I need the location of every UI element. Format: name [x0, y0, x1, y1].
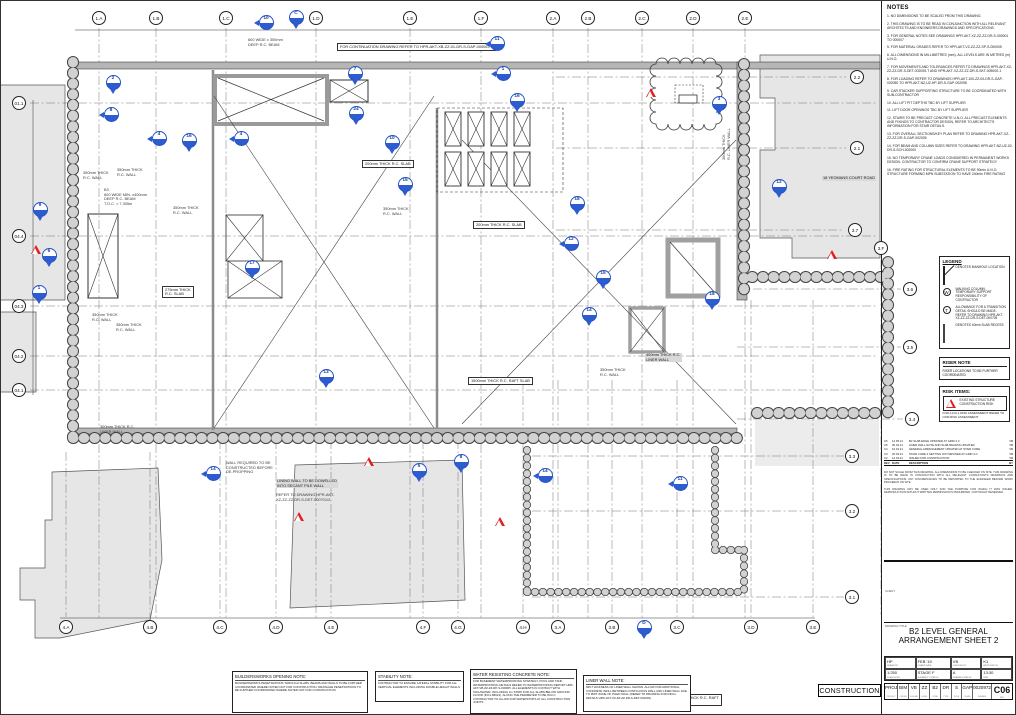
code-label: NUMBER [978, 696, 986, 698]
title-block-field: VBCHECKED BY [951, 657, 982, 669]
plan-label: 350mm THICK R.C. WALL [173, 206, 199, 215]
note-item: 10. ALL LIFT PIT DEPTHS TBC BY LIFT SUPP… [887, 101, 1013, 105]
code-label: ROLE [954, 696, 959, 698]
notes-list: 1. NO DIMENSIONS TO BE SCALED FROM THIS … [887, 14, 1013, 176]
plan-label: 350mm THICK R.C. WALL [117, 168, 143, 177]
panel-divider [881, 0, 882, 715]
note-item: 12. STAIRS TO BE PRECAST CONCRETE U.N.O.… [887, 116, 1013, 129]
field-value: K1 [983, 659, 1010, 664]
notes-title: NOTES [887, 5, 1013, 11]
note-box-title: BUILDERSWORKS OPENING NOTE: [235, 674, 365, 681]
section-marker-number: 1 [497, 67, 510, 72]
drawing-code-part: ZZLEVEL [920, 684, 931, 699]
section-marker: 14 [582, 307, 597, 322]
note-item: 11. LIFT DOOR OPENINGS TBC BY LIFT SUPPL… [887, 108, 1013, 112]
circle-icon: W [943, 288, 951, 296]
note-item: 8. FOR LOADING REFER TO DRAWINGS HPR-AKT… [887, 77, 1013, 86]
risk-warning-triangle [31, 245, 41, 254]
manhole-icon [943, 267, 954, 285]
section-marker: 2 [106, 75, 121, 90]
disclaimer-paragraph: DO NOT SCALE FROM THIS DRAWING. ALL DIME… [884, 471, 1013, 485]
car-stacker-pits [445, 112, 530, 186]
section-marker-number: 10 [260, 16, 273, 21]
section-marker-number: 8 [105, 108, 118, 113]
field-label: DRAWING STATUS [953, 677, 980, 679]
grid-bubble: 3.F [874, 241, 888, 255]
grid-bubble: 04.2 [12, 349, 26, 363]
grid-bubble: 04.4 [12, 229, 26, 243]
drawing-code-part: BIMORIGIN [898, 684, 909, 699]
field-value: 13:30 [983, 670, 1010, 675]
field-label: CHECKED BY [953, 665, 980, 667]
grid-bubble: 3.D [744, 620, 758, 634]
section-marker: 10 [385, 135, 400, 150]
note-item: 6. ALL DIMENSIONS IN MILLIMETRES (mm). A… [887, 53, 1013, 62]
section-marker-number: 9 [34, 203, 47, 208]
note-item: 16. FIRE RATING FOR STRUCTURAL ELEMENTS … [887, 168, 1013, 177]
grid-bubble: 3.7 [848, 223, 862, 237]
section-marker: 8 [104, 107, 119, 122]
grid-bubble: 4.D [269, 620, 283, 634]
plan-area: 1.A1.B1.C1.D1.E1.F2.A2.B2.C2.D2.E4.A4.B4… [0, 0, 1016, 715]
plan-label: 400mm THICK R.C. LINER WALL [645, 353, 682, 362]
title-block-field: FEB '19DRAWN DATE [916, 657, 951, 669]
section-marker-number: C [290, 11, 303, 16]
section-marker: 11 [490, 36, 505, 51]
risk-warning-triangle [495, 517, 505, 526]
section-marker: 1 [32, 285, 47, 300]
section-marker-number: 11 [674, 477, 687, 482]
plan-label: 350mm THICK R.C. WALL [600, 368, 626, 377]
section-marker-number: 7 [349, 67, 362, 72]
section-marker-number: 16 [183, 134, 196, 139]
plan-label: B3 600 WIDE MIN. x400mm DEEP R.C. BEAM T… [104, 188, 147, 206]
circle-icon: T [943, 306, 951, 314]
code-label: ORIGIN [900, 696, 907, 698]
grid-bubble: 04.3 [12, 299, 26, 313]
section-marker-number: 16 [511, 94, 524, 99]
stability-note-box: STABILITY NOTE: CONTRACTOR TO ENSURE LAT… [375, 671, 464, 702]
drawing-title: B2 LEVEL GENERAL ARRANGEMENT SHEET 2 [884, 627, 1013, 645]
revision-value: C06 [994, 685, 1011, 695]
grid-bubble: 3.4 [905, 412, 919, 426]
risk-items-title: RISK ITEMS: [943, 389, 1007, 394]
plan-label: WALL REQUIRED TO BE CONSTRUCTED BEFORE D… [226, 461, 273, 475]
plan-label: FOR CONTINUATION DRAWING REFER TO HPR-AK… [337, 43, 496, 51]
note-item: 7. FOR MOVEMENTS AND TOLERANCES REFER TO… [887, 65, 1013, 74]
code-label: LEVEL [922, 696, 928, 698]
plan-label: 300mm THICK R.C. LINER WALL [100, 425, 135, 434]
section-marker: 12 [772, 179, 787, 194]
revision-table: C614.05.21B2 SLAB EDGE UPDATED AT GRID 2… [884, 439, 1013, 466]
section-marker: C [289, 10, 304, 25]
revision-header-cell: BY [1004, 461, 1013, 465]
field-value: STAGE F [918, 670, 949, 675]
drawing-code-part: 0020972NUMBER [973, 684, 992, 699]
plan-label: 350mm THICK R.C. WALL [116, 323, 142, 332]
plan-label: 18 YEOMANS COURT ROAD [822, 176, 876, 181]
field-label: APPROVED BY [983, 665, 1010, 667]
code-label: PROJECT [887, 696, 896, 698]
note-item: 5. FOR MATERIAL GRADES REFER TO HPR-AKT-… [887, 45, 1013, 49]
note-box-body: FOR BASEMENT WATERPROOFING STRATEGY, POO… [473, 680, 574, 705]
field-value: FEB '19 [918, 659, 949, 664]
risk-warning-triangle [646, 88, 656, 97]
note-box-body: MIN THICKNESS OF LINER WALL SHOWN. ALLOW… [586, 686, 688, 700]
section-marker-number: 14 [539, 469, 552, 474]
code-label: ZONE [933, 696, 938, 698]
revision-label: REV [1000, 697, 1004, 699]
code-value: PROJ [885, 685, 897, 690]
plan-label: 350mm THICK R.C. WALL [83, 171, 109, 180]
revision-row: C212.03.21ISSUED FOR CONSTRUCTIONVB [884, 456, 1013, 460]
note-item: 14. FOR BEAM AND COLUMN SIZES REFER TO D… [887, 144, 1013, 153]
riser-note-title: RISER NOTE [943, 360, 1007, 365]
code-value: VB [911, 685, 917, 690]
grid-bubble: 2.2 [850, 70, 864, 84]
grid-bubble: 4.E [324, 620, 338, 634]
legend-item-label: DENOTES 40mm SLAB RECESS [956, 324, 1004, 328]
note-item: 1. NO DIMENSIONS TO BE SCALED FROM THIS … [887, 14, 1013, 18]
plan-geometry [0, 0, 1016, 715]
circle-icon: T [943, 306, 954, 314]
grid-bubble: 1.E [403, 11, 417, 25]
drawing-number-row: PROJPROJECTBIMORIGINVBVOLUMEZZLEVELB2ZON… [884, 683, 1013, 700]
grid-bubble: 2.1 [850, 141, 864, 155]
revision-header-cell: REV [884, 461, 892, 465]
grid-bubble: 3.6 [903, 282, 917, 296]
grid-bubble: 1.D [309, 11, 323, 25]
section-marker-number: 15 [597, 271, 610, 276]
section-marker: 9 [33, 202, 48, 217]
revision-cell: VB [1004, 456, 1013, 460]
section-marker-number: 2 [107, 76, 120, 81]
plan-label: 600 WIDE x 300mm DEEP R.C. BEAM [248, 38, 283, 47]
drawing-code-part: B2ZONE [930, 684, 941, 699]
note-item: 13. FOR OVERALL SECTIONS/KEY PLAN REFER … [887, 132, 1013, 141]
section-marker-number: 4 [235, 132, 248, 137]
code-value: S [955, 685, 958, 690]
grid-bubble: 3.5 [903, 340, 917, 354]
section-marker-number: 10 [386, 136, 399, 141]
note-box-title: STABILITY NOTE: [378, 674, 461, 681]
section-marker: 3 [712, 96, 727, 111]
revision-cell: 12.03.21 [892, 456, 909, 460]
code-value: 0020972 [973, 685, 991, 690]
grid-bubble: 3.B [605, 620, 619, 634]
grid-bubble: 2.C [635, 11, 649, 25]
plan-label: 1500mm THICK R.C. RAFT SLAB [468, 377, 533, 385]
note-box-body: CONTRACTOR TO ENSURE LATERAL STABILITY F… [378, 682, 461, 689]
legend-item-label: WALKING COLUMN. TEMPORARY SUPPORT RESPON… [956, 288, 1007, 303]
section-marker: 17 [245, 260, 260, 275]
code-value: B2 [932, 685, 938, 690]
section-marker: 24 [349, 106, 364, 121]
legend-item-label: ALLOWANCE FOR A TRANSITION DETAIL SHOULD… [956, 306, 1007, 321]
drawing-revision: C06REV [992, 684, 1012, 699]
section-marker: 18 [705, 291, 720, 306]
risk-items-box: RISK ITEMS: EXISTING STRUCTURE CONSTRUCT… [939, 386, 1010, 422]
grid-bubble: 3.2 [845, 504, 859, 518]
drawing-code-part: GAPCLASS [962, 684, 973, 699]
section-marker: 7 [348, 66, 363, 81]
plan-label: 275mm THICK R.C. SLAB [162, 286, 194, 298]
disclaimer-text: DO NOT SCALE FROM THIS DRAWING. ALL DIME… [884, 471, 1013, 497]
title-block-field: STAGE FSUITABILITY STATUS [916, 669, 951, 681]
section-marker: 12 [564, 236, 579, 251]
plan-label: REFER TO DRAWING HPR-AKT- XZ-ZZ-ZZ-DR-S-… [276, 493, 335, 502]
legend-item-label: DENOTES MANHOLE LOCATION [956, 266, 1005, 270]
field-value: HP [887, 659, 914, 664]
section-marker-number: 18 [706, 292, 719, 297]
risk-items-footer: FOR A FULL RISK ASSESSMENT REFER TO CDM … [943, 412, 1007, 419]
legend-title: LEGEND [943, 259, 1007, 264]
grid-bubble: 4.F [416, 620, 430, 634]
grid-bubble: 2.A [546, 11, 560, 25]
title-block-field: K1APPROVED BY [981, 657, 1012, 669]
section-marker: D [637, 620, 652, 635]
section-marker: 4 [152, 131, 167, 146]
grid-bubble: 1.C [219, 11, 233, 25]
plan-label: 350mm THICK R.C. WALL [383, 207, 409, 216]
section-marker-number: 3 [713, 97, 726, 102]
drawing-code-part: SROLE [952, 684, 963, 699]
risk-warning-triangle [827, 250, 837, 259]
title-block-field: 13:30SIZE [981, 669, 1012, 681]
section-marker-number: 12 [565, 237, 578, 242]
section-marker-number: D [638, 621, 651, 626]
grid-bubble: 3.A [551, 620, 565, 634]
drawing-code-part: DRTYPE [941, 684, 952, 699]
grid-bubble: 4.C [213, 620, 227, 634]
note-box-title: LINER WALL NOTE: [586, 678, 688, 685]
grid-bubble: 3.1 [845, 590, 859, 604]
drawing-title-line2: ARRANGEMENT SHEET 2 [884, 636, 1013, 645]
grid-bubble: 1.F [474, 11, 488, 25]
disclaimer-paragraph: THIS DRAWING MAY BE USED ONLY FOR THE PU… [884, 488, 1013, 495]
revision-header-row: REVDATEDESCRIPTIONBY [884, 460, 1013, 466]
legend-box: LEGEND DENOTES MANHOLE LOCATIONWWALKING … [939, 256, 1010, 349]
plan-label: 200mm THICK R.C. SLAB [473, 221, 525, 229]
section-marker-number: 1 [33, 286, 46, 291]
recess-icon [943, 325, 954, 343]
recess-icon [943, 324, 945, 343]
field-label: SIZE [983, 677, 1010, 679]
drawing-code-part: PROJPROJECT [885, 684, 898, 699]
plan-label: 200mm THICK R.C. SLAB [362, 160, 414, 168]
section-marker: 16 [510, 93, 525, 108]
notes-panel: NOTES 1. NO DIMENSIONS TO BE SCALED FROM… [887, 5, 1013, 180]
title-block-field: HPDRAWN BY [885, 657, 916, 669]
field-label: DRAWN DATE [918, 665, 949, 667]
code-value: DR [943, 685, 950, 690]
liner-wall-note-box: LINER WALL NOTE: MIN THICKNESS OF LINER … [583, 675, 691, 712]
legend-item: DENOTES 40mm SLAB RECESS [943, 324, 1007, 343]
section-marker: 10 [259, 15, 274, 30]
grid-bubble: 2.E [738, 11, 752, 25]
section-marker: 14 [206, 466, 221, 481]
section-marker-number: 13 [320, 370, 333, 375]
section-marker: 11 [673, 476, 688, 491]
grid-bubble: 3.E [806, 620, 820, 634]
section-marker: 15 [596, 270, 611, 285]
risk-item: EXISTING STRUCTURE CONSTRUCTION RISK [943, 396, 1007, 411]
grid-bubble: 4.A [59, 620, 73, 634]
section-marker-number: 5 [413, 464, 426, 469]
revision-cell: C2 [884, 456, 892, 460]
title-block-field: ADRAWING STATUS [951, 669, 982, 681]
water-resisting-note-box: WATER RESISTING CONCRETE NOTE: FOR BASEM… [470, 669, 577, 714]
note-item: 9. CAR STACKER SUPPORTING STRUCTURE TO B… [887, 89, 1013, 98]
revision-header-cell: DATE [892, 461, 909, 465]
grid-bubble: 2.B [581, 11, 595, 25]
title-block-field: 1:250SCALE AT A1 [885, 669, 916, 681]
risk-warning-triangle [364, 457, 374, 466]
drawing-title-line1: B2 LEVEL GENERAL [884, 627, 1013, 636]
manhole-icon [943, 266, 945, 285]
section-marker: 8 [454, 454, 469, 469]
code-label: VOLUME [910, 696, 918, 698]
section-marker-number: 24 [350, 107, 363, 112]
drawing-sheet: 1.A1.B1.C1.D1.E1.F2.A2.B2.C2.D2.E4.A4.B4… [0, 0, 1016, 715]
grid-bubble: 4.H [516, 620, 530, 634]
section-marker-number: 15 [399, 178, 412, 183]
note-item: 3. FOR GENERAL NOTES SEE DRAWINGS HPR-AK… [887, 34, 1013, 43]
grid-bubble: 3.3 [845, 449, 859, 463]
grid-bubble: 3.C [670, 620, 684, 634]
client-label: CLIENT [885, 589, 895, 593]
section-marker-number: 11 [491, 37, 504, 42]
grid-bubble: 04.1 [12, 383, 26, 397]
section-marker: 15 [398, 177, 413, 192]
revision-cell: ISSUED FOR CONSTRUCTION [909, 456, 1004, 460]
section-marker: 14 [538, 468, 553, 483]
revision-header-cell: DESCRIPTION [909, 461, 1004, 465]
section-marker-number: 17 [246, 261, 259, 266]
section-marker-number: 14 [583, 308, 596, 313]
risk-warning-triangle [294, 512, 304, 521]
section-marker-number: 8 [455, 455, 468, 460]
section-marker: 16 [182, 133, 197, 148]
note-box-body: BUILDERSWORKS PENETRATIONS THROUGH SLABS… [235, 682, 365, 693]
grid-bubble: 1.B [149, 11, 163, 25]
code-value: BIM [899, 685, 907, 690]
grid-bubble: 2.D [686, 11, 700, 25]
note-item: 15. NO TEMPORARY CRANE LOADS CONSIDERED … [887, 156, 1013, 165]
section-marker-number: 14 [207, 467, 220, 472]
section-marker-number: 6 [43, 249, 56, 254]
risk-item-label: EXISTING STRUCTURE CONSTRUCTION RISK [960, 399, 1004, 407]
section-marker: 6 [42, 248, 57, 263]
legend-item: TALLOWANCE FOR A TRANSITION DETAIL SHOUL… [943, 306, 1007, 321]
riser-note-body: RISER LOCATIONS TO BE FURTHER COORDINATE… [943, 366, 1007, 377]
field-value: VB [953, 659, 980, 664]
field-label: DRAWN BY [887, 665, 914, 667]
plan-label: LINING WALL TO BE DOWELLED INTO SECANT P… [276, 479, 338, 488]
code-value: GAP [962, 685, 972, 690]
section-marker: 1 [496, 66, 511, 81]
circle-icon: W [943, 288, 954, 296]
field-value: A [953, 670, 980, 675]
title-block-rule [884, 560, 1013, 562]
code-value: ZZ [922, 685, 928, 690]
section-marker-number: 18 [571, 197, 584, 202]
field-label: SUITABILITY STATUS [918, 677, 949, 679]
code-label: TYPE [943, 696, 948, 698]
section-marker: 18 [570, 196, 585, 211]
section-marker-number: 4 [153, 132, 166, 137]
plan-label: 350mm THICK R.C. WALL [92, 313, 118, 322]
warning-triangle-icon [946, 399, 956, 408]
code-label: CLASS [964, 696, 970, 698]
legend-list: DENOTES MANHOLE LOCATIONWWALKING COLUMN.… [943, 266, 1007, 343]
construction-stamp: CONSTRUCTION [818, 684, 881, 697]
field-label: SCALE AT A1 [887, 677, 914, 679]
riser-note-box: RISER NOTE RISER LOCATIONS TO BE FURTHER… [939, 357, 1010, 380]
grid-bubble: 4.B [143, 620, 157, 634]
section-marker: 4 [234, 131, 249, 146]
field-value: 1:250 [887, 670, 914, 675]
note-box-title: WATER RESISTING CONCRETE NOTE: [473, 672, 574, 679]
section-marker-number: 12 [773, 180, 786, 185]
grid-bubble: 1.A [92, 11, 106, 25]
drawing-code-part: VBVOLUME [909, 684, 920, 699]
plan-label: 300mm THICK R.C. LINER WALL [722, 128, 731, 160]
note-item: 2. THIS DRAWING IS TO BE READ IN CONJUNC… [887, 22, 1013, 31]
legend-item: WWALKING COLUMN. TEMPORARY SUPPORT RESPO… [943, 288, 1007, 303]
grid-bubble: 4.G [451, 620, 465, 634]
section-marker: 5 [412, 463, 427, 478]
grid-bubble: 01.1 [12, 96, 26, 110]
buildersworks-note-box: BUILDERSWORKS OPENING NOTE: BUILDERSWORK… [232, 671, 368, 713]
title-block-fields: HPDRAWN BYFEB '19DRAWN DATEVBCHECKED BYK… [884, 656, 1013, 681]
legend-item: DENOTES MANHOLE LOCATION [943, 266, 1007, 285]
section-marker: 13 [319, 369, 334, 384]
